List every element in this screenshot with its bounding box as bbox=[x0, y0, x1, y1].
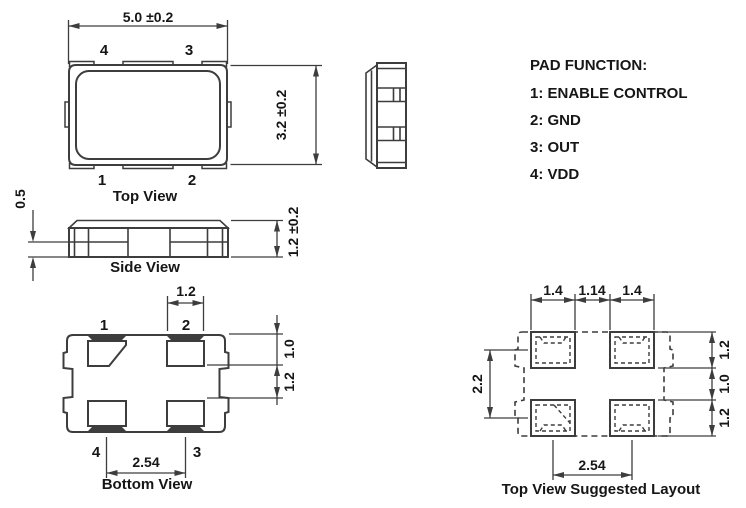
end-view-body bbox=[377, 63, 406, 168]
layout-pad-bottom-left bbox=[531, 400, 575, 436]
layout-pad-bottom-right bbox=[610, 400, 654, 436]
pad-function-item-3: 3: OUT bbox=[530, 139, 579, 156]
package-dimension-drawing: 5.0 ±0.2 3.2 ±0.2 4 3 1 2 Top View bbox=[0, 0, 746, 508]
side-view-pad-thickness-label: 0.5 bbox=[12, 189, 28, 209]
side-view-lid bbox=[69, 221, 228, 229]
pad-function-legend: PAD FUNCTION: 1: ENABLE CONTROL 2: GND 3… bbox=[530, 57, 688, 183]
layout-pad-top-right bbox=[610, 332, 654, 368]
top-view-pin-4: 4 bbox=[100, 42, 109, 59]
bottom-view-pin-4: 4 bbox=[92, 444, 101, 461]
side-view-height-label: 1.2 ±0.2 bbox=[285, 207, 301, 258]
layout-pad-gap-label: 1.14 bbox=[578, 282, 605, 298]
side-view-pad-thickness-dimension: 0.5 bbox=[12, 189, 68, 281]
top-view-width-dim-label: 5.0 ±0.2 bbox=[123, 9, 174, 25]
top-view: 5.0 ±0.2 3.2 ±0.2 4 3 1 2 Top View bbox=[65, 9, 322, 205]
layout-top-dimensions: 1.4 1.14 1.4 bbox=[531, 282, 654, 330]
layout-pad-top-left bbox=[531, 332, 575, 368]
side-view-height-dimension: 1.2 ±0.2 bbox=[231, 207, 301, 258]
layout-row-pitch-label: 2.2 bbox=[469, 374, 485, 394]
top-view-pin-1: 1 bbox=[98, 172, 106, 189]
layout-pad-height-top-label: 1.2 bbox=[716, 340, 732, 360]
bottom-view-pin-2: 2 bbox=[182, 317, 190, 334]
layout-row-pitch-dimension: 2.2 bbox=[469, 350, 528, 418]
layout-pad-width-left-label: 1.4 bbox=[543, 282, 563, 298]
layout-row-gap-label: 1.0 bbox=[716, 374, 732, 394]
pad-function-title: PAD FUNCTION: bbox=[530, 57, 647, 74]
bottom-view-pin-3: 3 bbox=[193, 444, 201, 461]
layout-pad-width-right-label: 1.4 bbox=[622, 282, 642, 298]
bottom-view-pad-width-label: 1.2 bbox=[176, 283, 196, 299]
top-view-title: Top View bbox=[113, 188, 178, 205]
top-view-height-dim-label: 3.2 ±0.2 bbox=[273, 90, 289, 141]
side-view-title: Side View bbox=[110, 259, 180, 276]
bottom-view-pad-height-label: 1.0 bbox=[281, 339, 297, 359]
top-view-pin-3: 3 bbox=[185, 42, 193, 59]
layout-pad-height-bottom-label: 1.2 bbox=[716, 408, 732, 428]
pad-function-item-2: 2: GND bbox=[530, 112, 581, 129]
bottom-view-pin-1: 1 bbox=[100, 317, 108, 334]
bottom-view: 1.2 1.0 1.2 2.54 1 2 4 3 Bottom View bbox=[64, 283, 298, 493]
bottom-view-title: Bottom View bbox=[102, 476, 193, 493]
bottom-view-row-gap-label: 1.2 bbox=[281, 372, 297, 392]
pad-function-item-4: 4: VDD bbox=[530, 166, 579, 183]
layout-pitch-label: 2.54 bbox=[578, 457, 605, 473]
bottom-view-pitch-dimension: 2.54 bbox=[107, 437, 186, 478]
layout-pitch-dimension: 2.54 bbox=[553, 440, 632, 480]
top-view-pin-2: 2 bbox=[188, 172, 196, 189]
pad-function-item-1: 1: ENABLE CONTROL bbox=[530, 85, 688, 102]
top-view-height-dimension: 3.2 ±0.2 bbox=[231, 66, 323, 165]
bottom-view-pitch-label: 2.54 bbox=[132, 454, 159, 470]
top-view-body bbox=[69, 65, 227, 165]
layout-view-title: Top View Suggested Layout bbox=[502, 481, 701, 498]
top-view-width-dimension: 5.0 ±0.2 bbox=[69, 9, 228, 64]
layout-right-dimensions: 1.2 1.0 1.2 bbox=[658, 332, 732, 436]
layout-view: 1.4 1.14 1.4 2.2 1.2 1.0 1.2 bbox=[469, 282, 732, 498]
end-view bbox=[366, 63, 406, 168]
